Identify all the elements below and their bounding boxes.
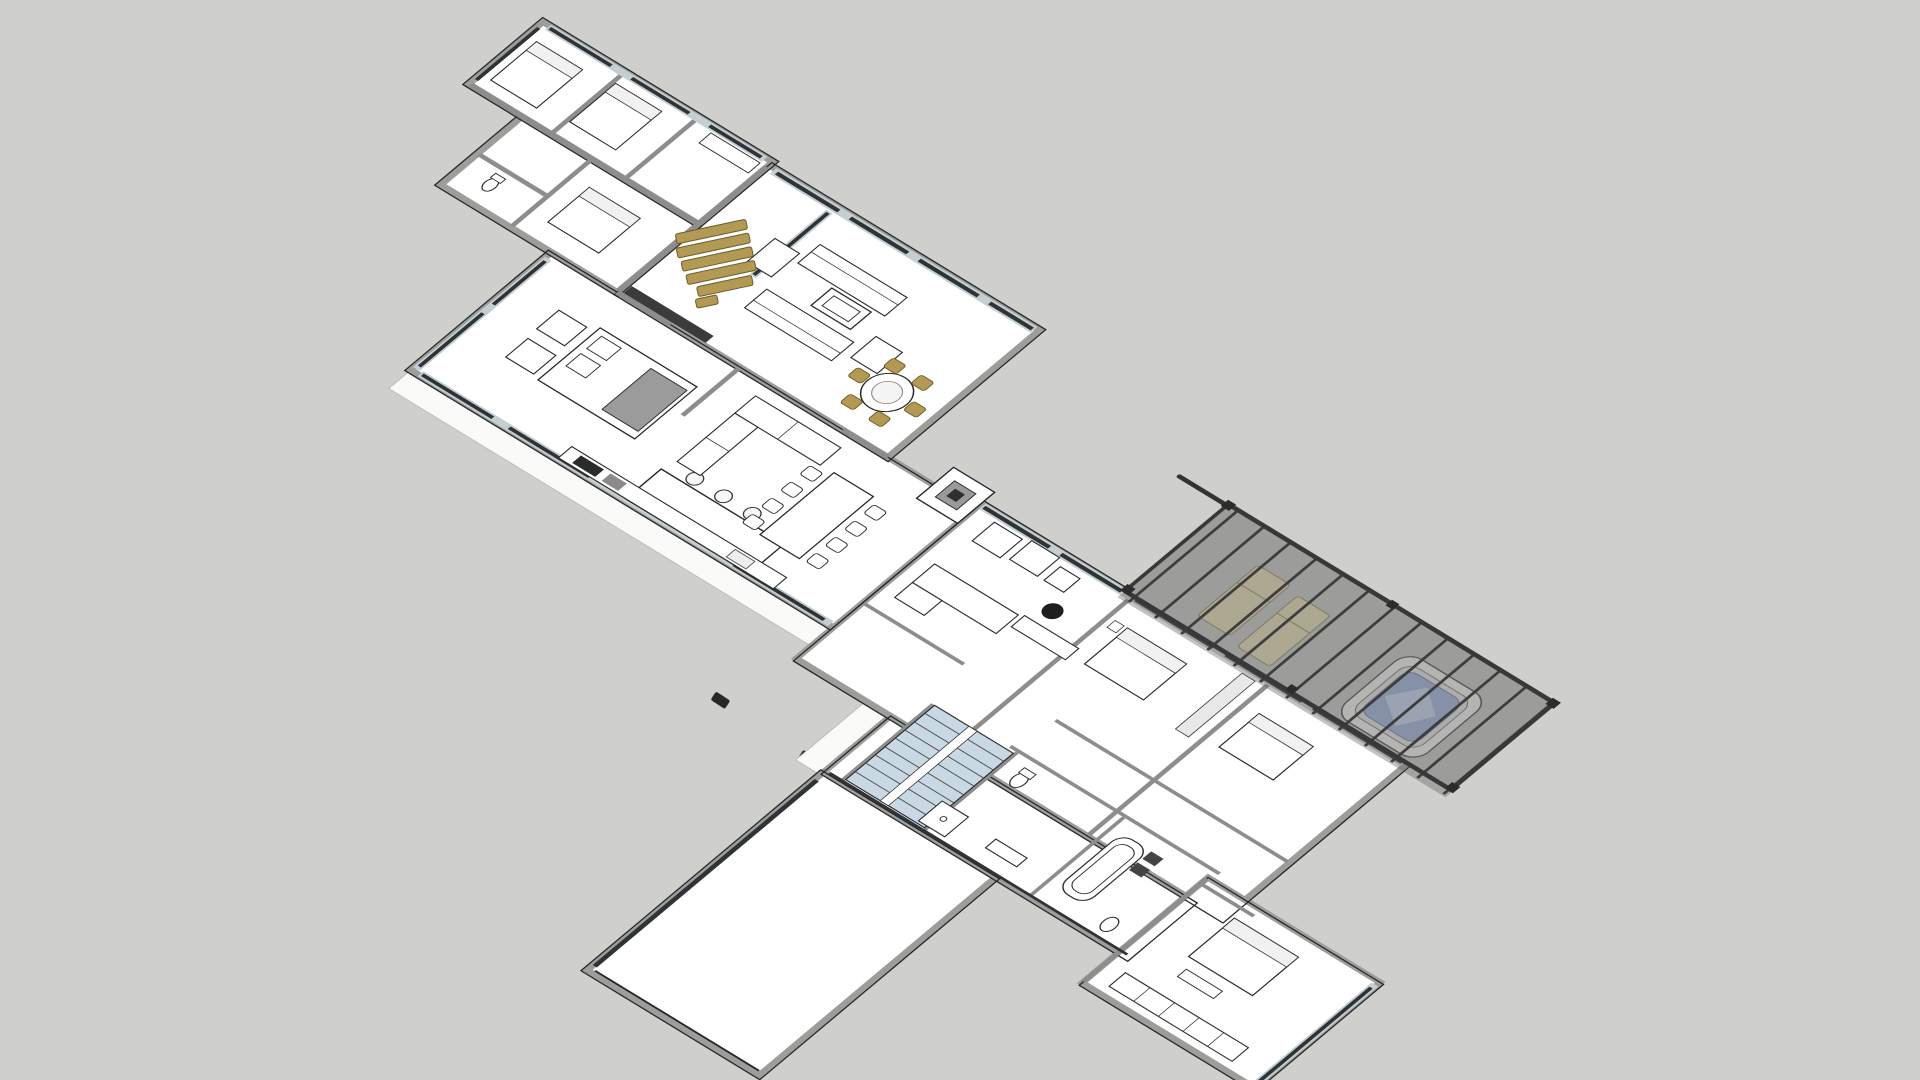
floorplan-rendering <box>0 0 1920 1080</box>
floorplan-scene <box>0 0 1920 1080</box>
floorplan-viewport <box>0 0 1920 1080</box>
